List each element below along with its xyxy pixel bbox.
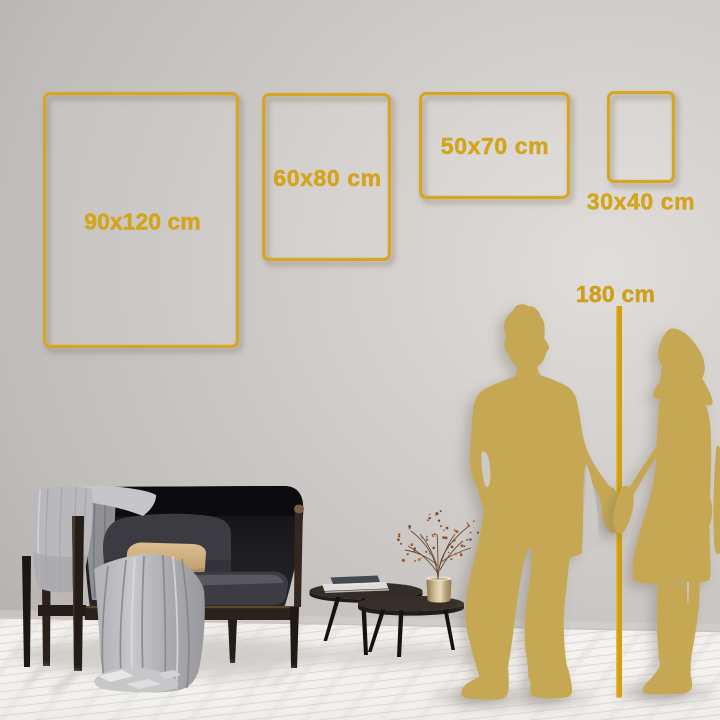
- svg-text:60x80 cm: 60x80 cm: [273, 165, 381, 191]
- svg-text:90x120 cm: 90x120 cm: [84, 209, 200, 235]
- svg-text:30x40 cm: 30x40 cm: [587, 189, 695, 215]
- svg-text:180 cm: 180 cm: [576, 281, 655, 307]
- svg-text:50x70 cm: 50x70 cm: [441, 133, 549, 159]
